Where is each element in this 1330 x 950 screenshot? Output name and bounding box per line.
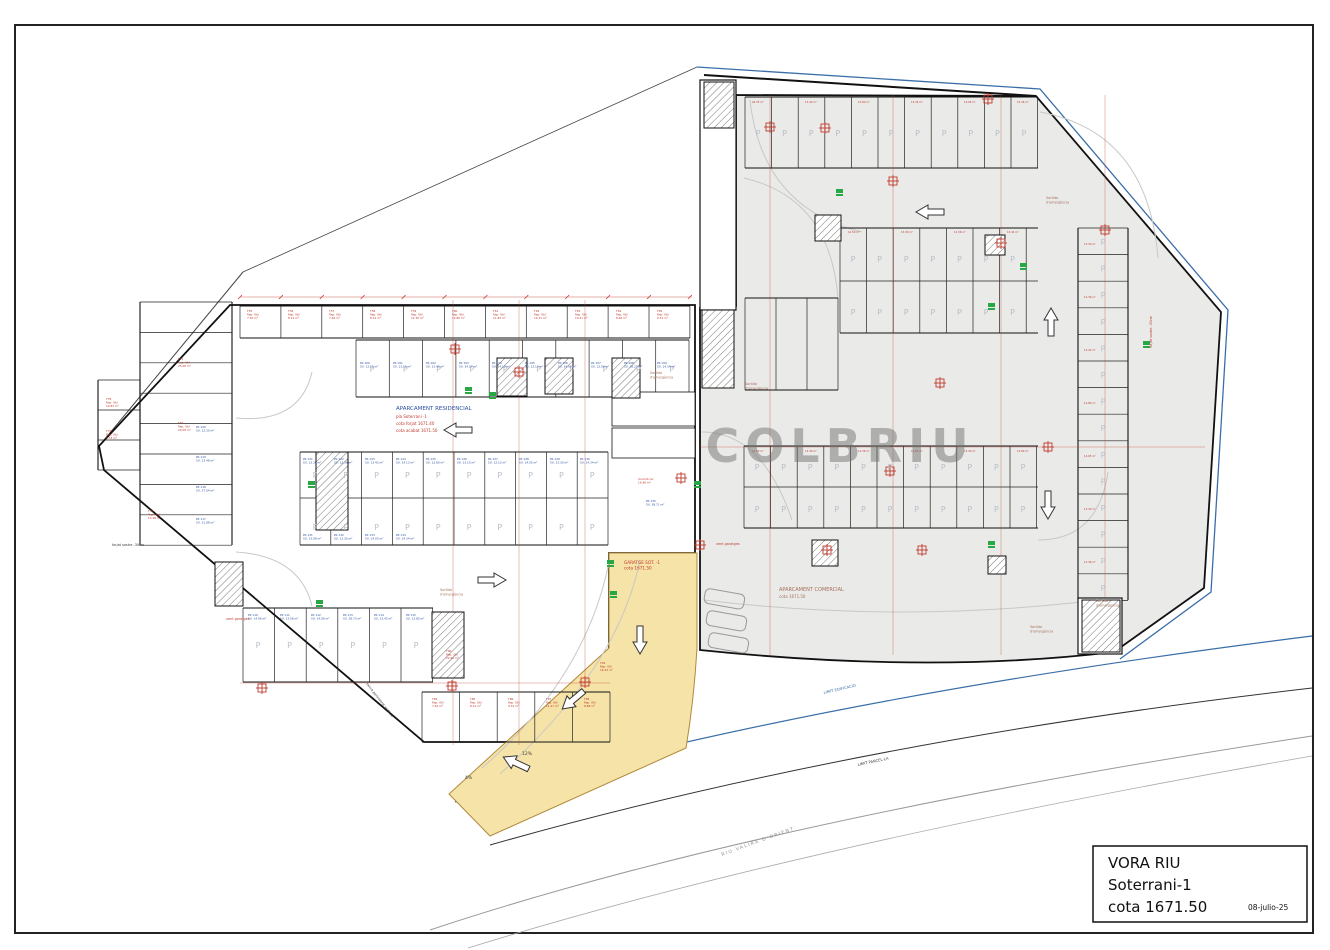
parking-p-glyph: P: [497, 523, 502, 532]
parking-p-glyph: P: [889, 129, 894, 138]
parking-p-glyph: P: [851, 308, 856, 317]
parking-p-glyph: P: [984, 308, 989, 317]
residential-cota-forjat: cota forjat 1671.40: [396, 421, 435, 426]
vent-label: vent garatges: [226, 617, 250, 621]
parking-p-glyph: P: [313, 471, 318, 480]
parking-p-glyph: P: [1101, 504, 1106, 513]
parking-p-glyph: P: [994, 505, 999, 514]
slab-note: forjat sostre -30cm: [1149, 315, 1153, 348]
slope-label: 12%: [522, 751, 533, 757]
stall-area-label: 13.42 m²: [1007, 230, 1019, 234]
parking-p-glyph: P: [888, 505, 893, 514]
parking-p-glyph: P: [382, 641, 387, 650]
parking-p-glyph: P: [994, 463, 999, 472]
stall-area-label: 12.50 m²: [848, 230, 860, 234]
residential-area-plan: pla Soterrani -1: [396, 414, 427, 419]
stall-area-label: 12.36 m²: [1084, 295, 1096, 299]
parking-p-glyph: P: [1101, 371, 1106, 380]
residential-cota-acabat: cota acabat 1671.50: [396, 428, 438, 433]
parking-p-glyph: P: [781, 505, 786, 514]
slope-label: 4%: [465, 775, 473, 781]
residential-area-title: APARCAMENT RESIDENCIAL: [396, 406, 473, 412]
parking-p-glyph: P: [436, 471, 441, 480]
parking-p-glyph: P: [287, 641, 292, 650]
parking-p-glyph: P: [405, 523, 410, 532]
parking-p-glyph: P: [1101, 477, 1106, 486]
parking-p-glyph: P: [862, 129, 867, 138]
parking-p-glyph: P: [559, 523, 564, 532]
parking-p-glyph: P: [942, 129, 947, 138]
parking-p-glyph: P: [1101, 557, 1106, 566]
parking-p-glyph: P: [834, 505, 839, 514]
parking-p-glyph: P: [374, 523, 379, 532]
stall-area-label: 12.80 m²: [858, 100, 870, 104]
stall-area-label: 26.35 m²: [752, 100, 764, 104]
vent-label: vent garatges: [716, 542, 740, 546]
parking-p-glyph: P: [405, 471, 410, 480]
parking-p-glyph: P: [904, 308, 909, 317]
stall-area-label: 14.05 m²: [1084, 454, 1096, 458]
parking-p-glyph: P: [1101, 291, 1106, 300]
parking-p-glyph: P: [1101, 344, 1106, 353]
parking-p-glyph: P: [436, 523, 441, 532]
parking-p-glyph: P: [755, 505, 760, 514]
parking-p-glyph: P: [528, 471, 533, 480]
parking-p-glyph: P: [930, 255, 935, 264]
parking-p-glyph: P: [915, 129, 920, 138]
stall-area-label: 12.36 m²: [954, 230, 966, 234]
parking-p-glyph: P: [1010, 308, 1015, 317]
stall-area-label: 15.26 m²: [1017, 100, 1029, 104]
stall-area-label: 13.30 m²: [911, 100, 923, 104]
parking-p-glyph: P: [1010, 255, 1015, 264]
parking-p-glyph: P: [914, 505, 919, 514]
parking-p-glyph: P: [756, 129, 761, 138]
parking-p-glyph: P: [313, 523, 318, 532]
stall-area-label: 13.30 m²: [1084, 242, 1096, 246]
parking-p-glyph: P: [835, 129, 840, 138]
title-block: VORA RIU Soterrani-1 cota 1671.50 08-jul…: [1093, 846, 1307, 922]
parking-p-glyph: P: [1101, 238, 1106, 247]
parking-p-glyph: P: [968, 129, 973, 138]
parking-p-glyph: P: [1021, 463, 1026, 472]
parking-p-glyph: P: [1021, 505, 1026, 514]
parking-p-glyph: P: [809, 129, 814, 138]
parking-p-glyph: P: [319, 641, 324, 650]
commercial-area-cota: cota 1671.50: [779, 594, 806, 599]
parking-p-glyph: P: [851, 255, 856, 264]
parking-p-glyph: P: [343, 523, 348, 532]
parking-p-glyph: P: [1101, 424, 1106, 433]
parking-p-glyph: P: [350, 641, 355, 650]
parking-p-glyph: P: [497, 471, 502, 480]
parking-p-glyph: P: [1022, 129, 1027, 138]
plan-date: 08-julio-25: [1248, 903, 1288, 912]
stall-area-label: 12.80 m²: [1084, 401, 1096, 405]
floor-plan-drawing: PPPPPPPPPPPPPPPPPPPPPPPPPPPPPPPPPPPPPPPP…: [0, 0, 1330, 950]
stall-area-label: 13.30 m²: [805, 100, 817, 104]
stall-area-label: 13.30 m²: [901, 230, 913, 234]
parking-p-glyph: P: [1101, 398, 1106, 407]
parking-p-glyph: P: [808, 505, 813, 514]
commercial-area-title: APARCAMENT COMERCIAL: [779, 587, 844, 593]
parking-p-glyph: P: [1101, 318, 1106, 327]
parking-p-glyph: P: [590, 523, 595, 532]
level-name: Soterrani-1: [1108, 876, 1192, 894]
parking-p-glyph: P: [256, 641, 261, 650]
stall-area-label: 13.30 m²: [1084, 507, 1096, 511]
slab-note: forjat sostre -30cm: [112, 543, 145, 547]
parking-p-glyph: P: [877, 255, 882, 264]
parking-p-glyph: P: [930, 308, 935, 317]
stall-area-label: 14.05 m²: [964, 100, 976, 104]
parking-p-glyph: P: [861, 505, 866, 514]
parking-p-glyph: P: [559, 471, 564, 480]
parking-p-glyph: P: [904, 255, 909, 264]
parking-p-glyph: P: [941, 505, 946, 514]
parking-p-glyph: P: [877, 308, 882, 317]
parking-p-glyph: P: [967, 505, 972, 514]
stall-area-label: 12.80 m²: [1017, 449, 1029, 453]
stall-area-label: 12.36 m²: [1084, 560, 1096, 564]
parking-p-glyph: P: [528, 523, 533, 532]
parking-p-glyph: P: [374, 471, 379, 480]
parking-p-glyph: P: [1101, 451, 1106, 460]
parking-p-glyph: P: [984, 255, 989, 264]
parking-p-glyph: P: [1101, 531, 1106, 540]
parking-p-glyph: P: [467, 471, 472, 480]
parking-p-glyph: P: [414, 641, 419, 650]
parking-p-glyph: P: [1101, 584, 1106, 593]
parking-p-glyph: P: [957, 255, 962, 264]
parking-p-glyph: P: [590, 471, 595, 480]
parking-p-glyph: P: [1101, 265, 1106, 274]
elevation-value: cota 1671.50: [1108, 898, 1207, 916]
project-name: VORA RIU: [1108, 854, 1180, 872]
parking-p-glyph: P: [343, 471, 348, 480]
stall-area-label: 13.42 m²: [1084, 348, 1096, 352]
parking-p-glyph: P: [957, 308, 962, 317]
parking-p-glyph: P: [467, 523, 472, 532]
parking-p-glyph: P: [782, 129, 787, 138]
watermark-text: COLBRIU: [705, 419, 974, 473]
parking-p-glyph: P: [995, 129, 1000, 138]
